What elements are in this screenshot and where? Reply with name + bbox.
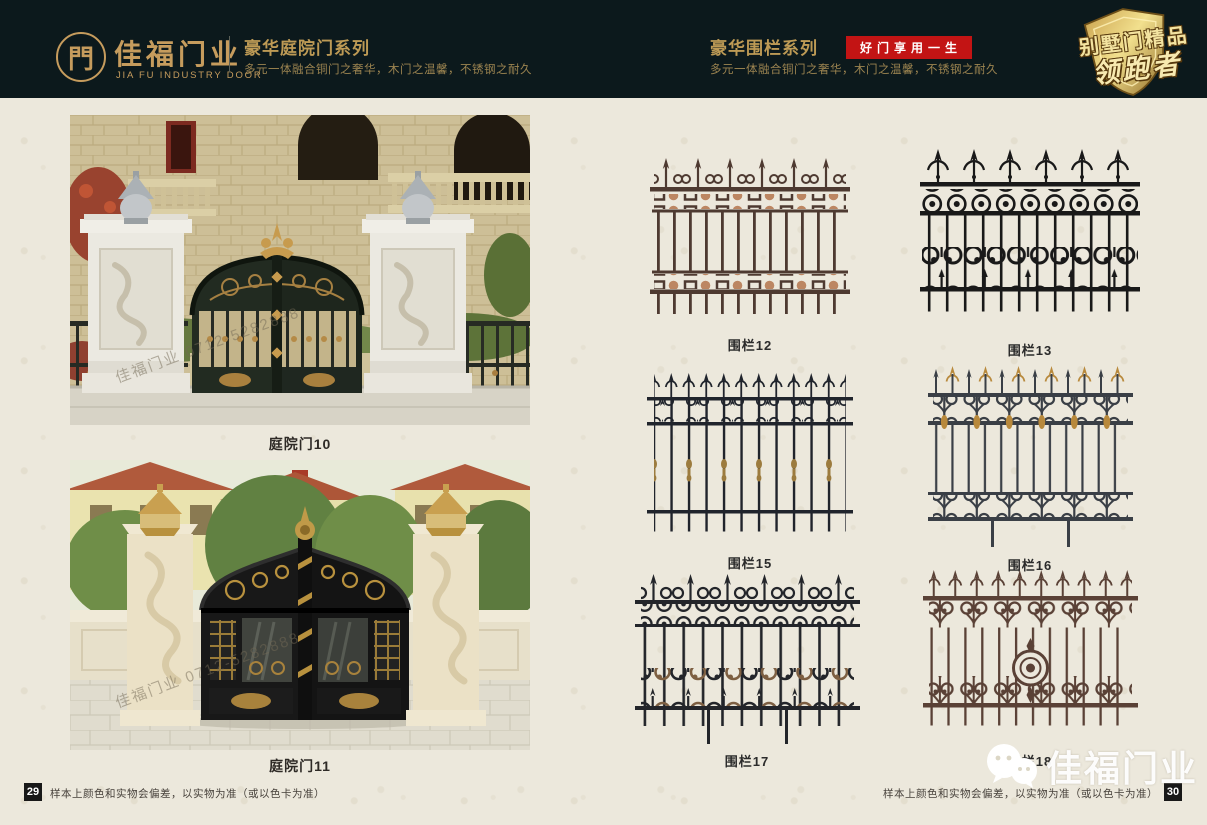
header-bar: 門 佳福门业 JIA FU INDUSTRY DOOR 豪华庭院门系列 多元一体…: [0, 0, 1207, 98]
fence-illustration-17: [635, 574, 860, 746]
gate-photo-2: 佳福门业 0712-5282888: [70, 460, 530, 750]
brand-watermark-text: 佳福门业: [1046, 740, 1198, 792]
door-series-title: 豪华庭院门系列: [244, 34, 370, 59]
shield-emblem: 别墅门精品 领跑者: [1047, 0, 1207, 107]
fence-card-13: 围栏13: [917, 149, 1143, 359]
fence-card-15: 围栏15: [637, 372, 863, 572]
fence-series-subtitle: 多元一体融合铜门之奢华，木门之温馨，不锈钢之耐久: [710, 61, 998, 77]
fence-label-12: 围栏12: [728, 335, 772, 354]
fence-label-13: 围栏13: [1008, 340, 1052, 359]
door-series-subtitle: 多元一体融合铜门之奢华，木门之温馨，不锈钢之耐久: [244, 61, 532, 77]
brand-logo-icon: 門: [56, 32, 106, 82]
wechat-icon: [982, 741, 1040, 791]
slogan-badge: 好门享用一生: [846, 36, 972, 59]
brand-logo-glyph: 門: [68, 39, 94, 76]
fence-illustration-13: [920, 149, 1140, 335]
fence-label-15: 围栏15: [728, 553, 772, 572]
fence-series-title: 豪华围栏系列: [710, 34, 818, 59]
fence-illustration-16: [928, 366, 1133, 550]
brand-watermark: 佳福门业: [982, 740, 1198, 792]
header-divider: [229, 36, 230, 72]
fence-card-16: 围栏16: [917, 366, 1143, 574]
catalog-page: 門 佳福门业 JIA FU INDUSTRY DOOR 豪华庭院门系列 多元一体…: [0, 0, 1207, 825]
fence-label-17: 围栏17: [725, 751, 769, 770]
brand-name-english: JIA FU INDUSTRY DOOR: [116, 70, 263, 81]
page-number-left: 29: [24, 783, 42, 801]
disclaimer-left: 样本上颜色和实物会偏差，以实物为准（或以色卡为准）: [50, 786, 325, 801]
gate-photo-1: 佳福门业 0712-5282888: [70, 115, 530, 425]
brand-name: 佳福门业: [114, 33, 242, 73]
gate-caption-2: 庭院门11: [70, 756, 530, 776]
fence-card-17: 围栏17: [634, 574, 860, 770]
gate-photo-2-illustration: [70, 460, 530, 750]
fence-illustration-15: [645, 372, 855, 548]
fence-illustration-18: [923, 570, 1138, 746]
fence-card-12: 围栏12: [637, 158, 863, 354]
gate-caption-1: 庭院门10: [70, 434, 530, 454]
fence-illustration-12: [650, 158, 850, 330]
